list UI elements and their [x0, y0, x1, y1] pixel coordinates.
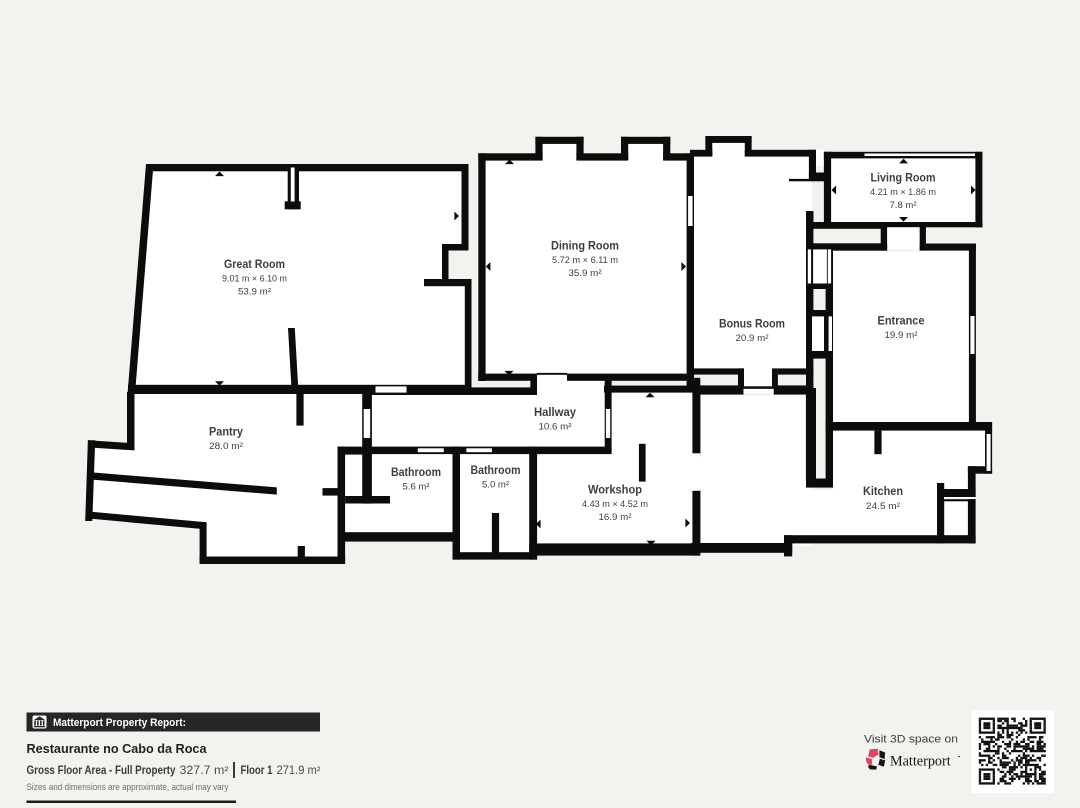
svg-text:Living Room: Living Room	[871, 173, 936, 185]
svg-text:20.9 m²: 20.9 m²	[736, 333, 770, 344]
svg-text:Floor 1: Floor 1	[241, 764, 273, 777]
svg-text:Visit 3D space on: Visit 3D space on	[864, 734, 958, 746]
svg-text:Dining Room: Dining Room	[551, 241, 619, 253]
svg-text:327.7 m²: 327.7 m²	[180, 764, 229, 777]
svg-text:Gross Floor Area - Full Proper: Gross Floor Area - Full Property	[27, 764, 176, 777]
svg-text:7.8 m²: 7.8 m²	[890, 200, 918, 211]
svg-text:Pantry: Pantry	[209, 427, 244, 439]
svg-text:Bonus Room: Bonus Room	[719, 319, 785, 331]
svg-text:271.9 m²: 271.9 m²	[277, 764, 321, 777]
svg-text:Hallway: Hallway	[534, 407, 577, 419]
svg-text:5.6 m²: 5.6 m²	[403, 482, 431, 493]
svg-text:Kitchen: Kitchen	[863, 486, 903, 498]
svg-text:4.43 m × 4.52 m: 4.43 m × 4.52 m	[582, 499, 648, 510]
svg-text:Workshop: Workshop	[588, 485, 642, 497]
svg-text:Entrance: Entrance	[878, 316, 925, 328]
svg-text:Bathroom: Bathroom	[471, 465, 521, 477]
svg-text:Matterport Property Report:: Matterport Property Report:	[53, 717, 186, 729]
svg-text:35.9 m²: 35.9 m²	[569, 268, 603, 279]
svg-text:10.6 m²: 10.6 m²	[539, 422, 573, 433]
svg-text:Matterport: Matterport	[890, 754, 951, 770]
svg-text:Sizes and dimensions are appro: Sizes and dimensions are approximate, ac…	[27, 782, 229, 792]
svg-text:Great Room: Great Room	[224, 259, 285, 271]
svg-text:53.9 m²: 53.9 m²	[238, 287, 272, 298]
svg-text:5.72 m × 6.11 m: 5.72 m × 6.11 m	[552, 255, 618, 266]
svg-text:16.9 m²: 16.9 m²	[599, 512, 633, 523]
svg-text:Bathroom: Bathroom	[391, 467, 441, 479]
svg-text:5.0 m²: 5.0 m²	[482, 480, 510, 491]
svg-text:28.0 m²: 28.0 m²	[209, 441, 244, 452]
svg-text:Restaurante no Cabo da Roca: Restaurante no Cabo da Roca	[27, 741, 208, 756]
svg-text:4.21 m × 1.86 m: 4.21 m × 1.86 m	[870, 187, 936, 198]
svg-text:24.5 m²: 24.5 m²	[866, 501, 901, 512]
svg-text:9.01 m × 6.10 m: 9.01 m × 6.10 m	[222, 273, 287, 284]
svg-text:19.9 m²: 19.9 m²	[885, 330, 919, 341]
